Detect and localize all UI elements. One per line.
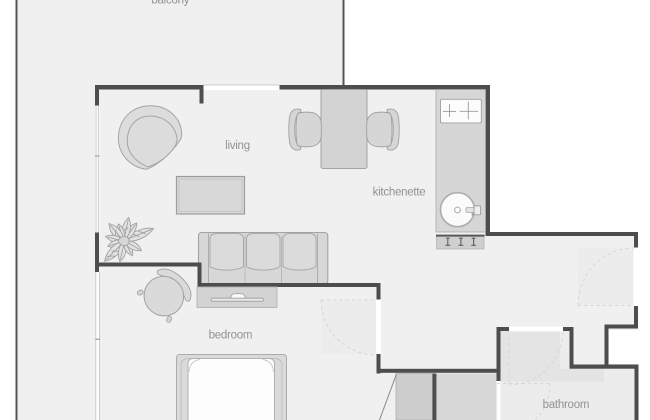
svg-text:balcony: balcony [151, 0, 189, 7]
svg-text:living: living [225, 140, 250, 152]
svg-text:bathroom: bathroom [543, 399, 590, 411]
svg-text:bedroom: bedroom [209, 330, 253, 342]
svg-text:kitchenette: kitchenette [373, 186, 426, 198]
